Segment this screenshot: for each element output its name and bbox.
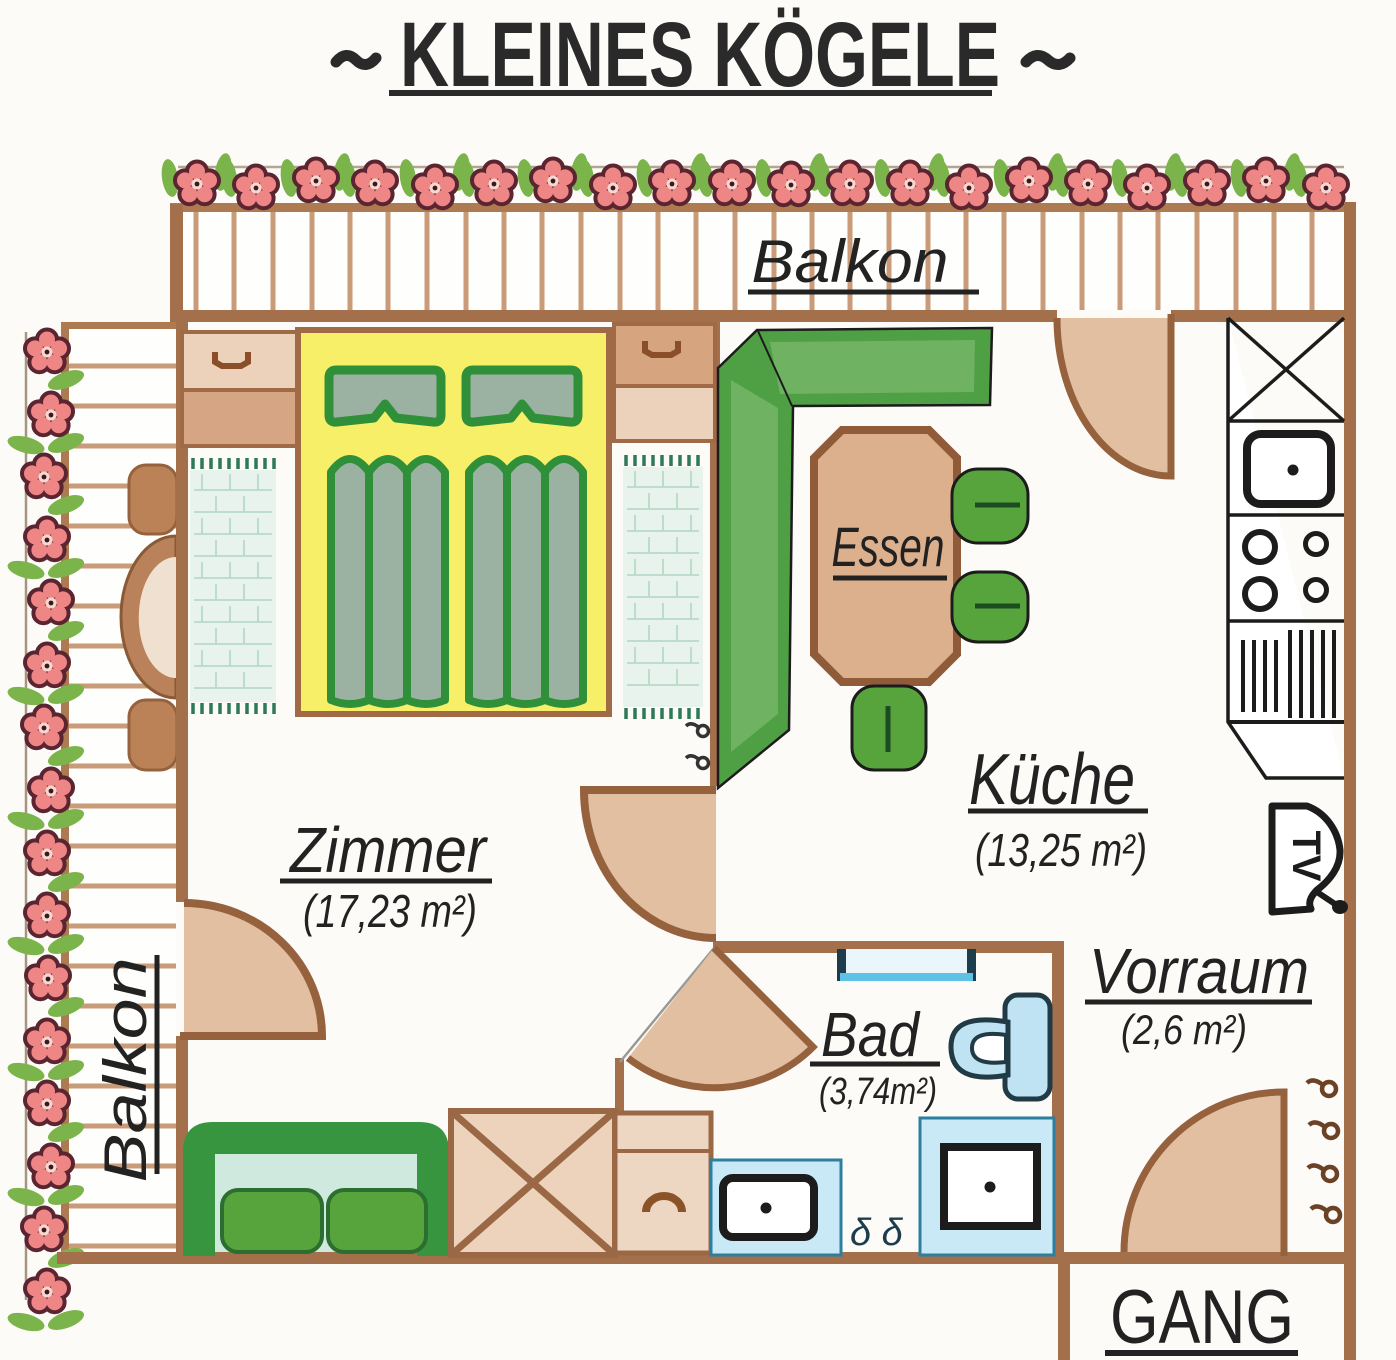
svg-text:(13,25 m²): (13,25 m²) <box>975 824 1147 876</box>
svg-text:Zimmer: Zimmer <box>288 814 488 886</box>
svg-text:GANG: GANG <box>1110 1275 1294 1360</box>
svg-text:Küche: Küche <box>969 740 1135 820</box>
svg-text:(17,23 m²): (17,23 m²) <box>303 885 477 937</box>
svg-text:Essen: Essen <box>832 515 945 578</box>
svg-text:Bad: Bad <box>821 1001 921 1070</box>
svg-text:TV: TV <box>1284 830 1328 881</box>
svg-text:(3,74m²): (3,74m²) <box>819 1071 937 1113</box>
svg-text:Balkon: Balkon <box>752 228 949 295</box>
svg-text:δ δ: δ δ <box>850 1212 904 1254</box>
svg-text:Vorraum: Vorraum <box>1089 935 1309 1007</box>
svg-text:(2,6 m²): (2,6 m²) <box>1121 1006 1247 1053</box>
svg-text:Balkon: Balkon <box>92 958 159 1183</box>
